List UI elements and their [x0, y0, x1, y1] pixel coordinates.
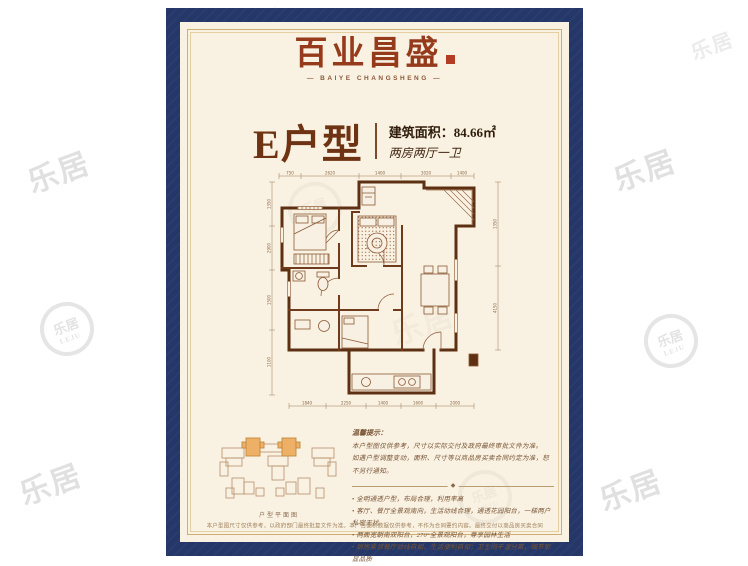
- leju-watermark: 乐居: [20, 138, 95, 201]
- structural-column: [469, 354, 478, 366]
- leju-watermark: 乐居: [606, 136, 681, 199]
- leju-badge-glyph: 乐居: [654, 324, 685, 351]
- kitchen-sink: [362, 378, 371, 387]
- dimension-label: 1840: [302, 401, 313, 406]
- dimension-label: 1350: [267, 198, 272, 209]
- bed-bedroom1: [294, 214, 326, 250]
- siteplan-drawing: [218, 432, 340, 510]
- brand-seal-icon: [446, 55, 455, 64]
- selling-point: 全明通透户型，布局合理，利用率高: [352, 494, 554, 506]
- selling-point: 厨房紧邻餐厅动线自如，生活便利自如；卫生间干湿分离，细节彰显品质: [352, 542, 554, 566]
- wardrobe: [294, 254, 329, 264]
- dimension-label: 2000: [450, 401, 461, 406]
- poster-canvas: { "colors":{"panel_navy":"#253768","pape…: [0, 0, 748, 561]
- leju-badge-caption: LEJU: [59, 330, 82, 345]
- dimension-labels: 750 2620 1400 3020 1400 1840 2250 1400 1…: [267, 171, 498, 406]
- leju-badge-glyph: 乐居: [50, 312, 81, 339]
- leju-watermark: 乐居: [686, 23, 737, 65]
- brand-name-cn-text: 百业昌盛: [295, 36, 443, 72]
- stove-burner: [399, 379, 406, 386]
- dimension-label: 4150: [493, 302, 498, 313]
- leju-watermark: 乐居: [592, 456, 667, 519]
- title-divider: [375, 123, 377, 159]
- leju-badge-watermark: 乐居 LEJU: [636, 306, 705, 375]
- unit-title: E户型: [253, 112, 363, 170]
- brand-logo: 百业昌盛 — BAIYE CHANGSHENG —: [180, 36, 569, 82]
- dimension-label: 750: [286, 171, 294, 176]
- dimension-label: 1600: [413, 401, 424, 406]
- room-layout-label: 两房两厅一卫: [389, 144, 496, 161]
- dimension-label: 1100: [267, 356, 272, 367]
- dimension-label: 1400: [375, 171, 386, 176]
- dimension-label: 1400: [378, 401, 389, 406]
- dining-table: [421, 266, 449, 314]
- diamond-icon: ◆: [448, 482, 459, 489]
- notes-intro-line: 本户型图仅供参考，尺寸以实际交付及政府最终审批文件为准。: [352, 441, 554, 453]
- bed-master: [358, 216, 396, 262]
- dimension-label: 3020: [421, 171, 432, 176]
- siteplan-caption: 户型平面图: [218, 510, 340, 519]
- built-area-label: 建筑面积：84.66㎡: [389, 122, 496, 141]
- stove-burner: [409, 379, 416, 386]
- unit-title-row: E户型 建筑面积：84.66㎡ 两房两厅一卫: [180, 112, 569, 170]
- dimension-label: 1400: [457, 171, 468, 176]
- notes-intro-line: 如遇户型调整变动，面积、尺寸等以商品房买卖合同约定为准，恕不另行通知。: [352, 453, 554, 478]
- selling-point: 两面宽朝南双阳台，270°全景观阳台，尊享园林生活: [352, 530, 554, 542]
- dimension-label: 1350: [493, 218, 498, 229]
- site-buildings: [220, 444, 336, 498]
- highlighted-building: [278, 438, 300, 456]
- highlighted-building: [242, 438, 264, 456]
- dimension-label: 2250: [341, 401, 352, 406]
- navy-border-panel: 乐居 LEJU 乐居 乐居 LEJU 百业昌盛 — BAIYE CHANGSHE…: [166, 8, 583, 556]
- bed-bedroom2: [342, 316, 368, 348]
- dimension-label: 2900: [267, 242, 272, 253]
- utility-fixtures: [295, 320, 330, 332]
- notes-title: 温馨提示：: [352, 428, 554, 438]
- dimension-label: 1500: [267, 294, 272, 305]
- brand-name-cn: 百业昌盛: [180, 36, 569, 72]
- floorplan-drawing: 750 2620 1400 3020 1400 1840 2250 1400 1…: [266, 170, 510, 422]
- notes-intro: 本户型图仅供参考，尺寸以实际交付及政府最终审批文件为准。 如遇户型调整变动，面积…: [352, 441, 554, 478]
- highlighted-buildings: [242, 438, 300, 456]
- dimension-label: 2620: [325, 171, 336, 176]
- notes-divider: ◆: [352, 482, 554, 490]
- foyer-appliance: [362, 187, 375, 205]
- bathroom-fixtures: [293, 271, 329, 291]
- floorplan-page: 乐居 LEJU 乐居 乐居 LEJU 百业昌盛 — BAIYE CHANGSHE…: [180, 22, 569, 542]
- leju-badge-caption: LEJU: [663, 342, 686, 357]
- kitchen-counter: [352, 374, 431, 390]
- leju-watermark: 乐居: [12, 450, 87, 513]
- furniture: [293, 187, 478, 390]
- unit-info: 建筑面积：84.66㎡ 两房两厅一卫: [389, 122, 496, 161]
- notes-block: 温馨提示： 本户型图仅供参考，尺寸以实际交付及政府最终审批文件为准。 如遇户型调…: [352, 428, 554, 566]
- leju-badge-watermark: 乐居 LEJU: [32, 294, 101, 363]
- selling-points-list: 全明通透户型，布局合理，利用率高 客厅、餐厅全景观南向，生活动线合理，通透花园阳…: [352, 494, 554, 566]
- footer-disclaimer: 本户型图尺寸仅供参考，以政府部门最终批复文件为准。本广告面积数据仅供参考，不作为…: [207, 521, 543, 529]
- brand-name-en: — BAIYE CHANGSHENG —: [180, 75, 569, 82]
